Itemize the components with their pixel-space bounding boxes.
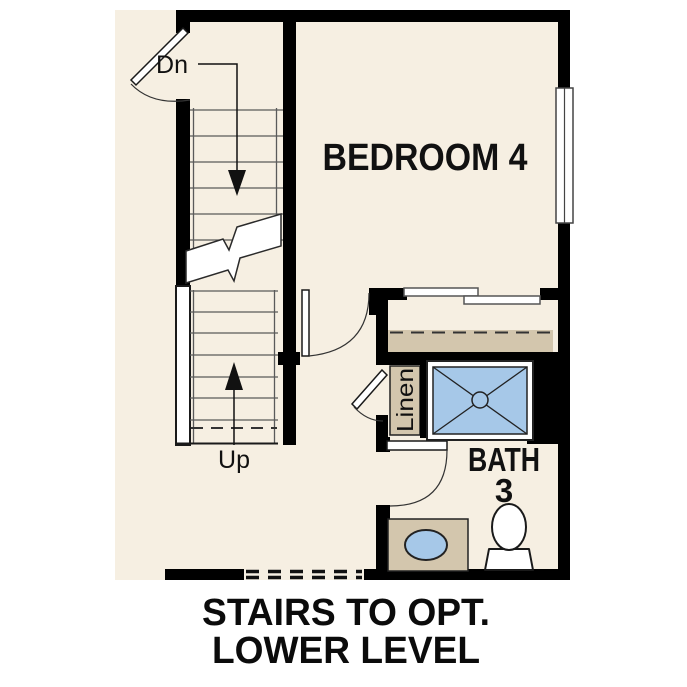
bath-number-label: 3 [495, 472, 513, 509]
linen-shower-divider-wall [420, 362, 427, 438]
caption: STAIRS TO OPT. LOWER LEVEL [202, 592, 490, 672]
wall-bottom-left [165, 569, 244, 580]
toilet-bowl [492, 504, 526, 550]
wall-stair-right-stub [278, 352, 300, 365]
vanity [388, 519, 468, 571]
linen-label: Linen [392, 368, 418, 432]
closet-bypass-door-1 [404, 288, 478, 296]
wall-linen-lower-stub [376, 415, 388, 437]
bedroom-door-leaf [302, 290, 309, 356]
shower-drain [472, 392, 488, 408]
stairs-up-label: Up [218, 446, 250, 474]
bedroom-window [556, 88, 573, 223]
closet-bypass-door-2 [464, 296, 540, 304]
bath-door-leaf [387, 441, 447, 450]
shower [427, 361, 533, 440]
stair-side-wall-lower [176, 286, 190, 445]
caption-line-1: STAIRS TO OPT. [202, 592, 490, 634]
caption-line-2: LOWER LEVEL [212, 630, 480, 672]
wall-closet-top-right [540, 288, 559, 300]
floor-plan-drawing: BEDROOM 4 BATH 3 Linen Dn Up STAIRS TO O… [0, 0, 687, 687]
wall-top [176, 10, 570, 22]
toilet-tank [485, 549, 533, 570]
stairs-down-label: Dn [156, 51, 188, 79]
floor-plan-page: BEDROOM 4 BATH 3 Linen Dn Up STAIRS TO O… [0, 0, 687, 687]
sink-basin [405, 530, 447, 560]
bedroom-label: BEDROOM 4 [323, 137, 528, 179]
wall-stair-bedroom [283, 22, 296, 445]
